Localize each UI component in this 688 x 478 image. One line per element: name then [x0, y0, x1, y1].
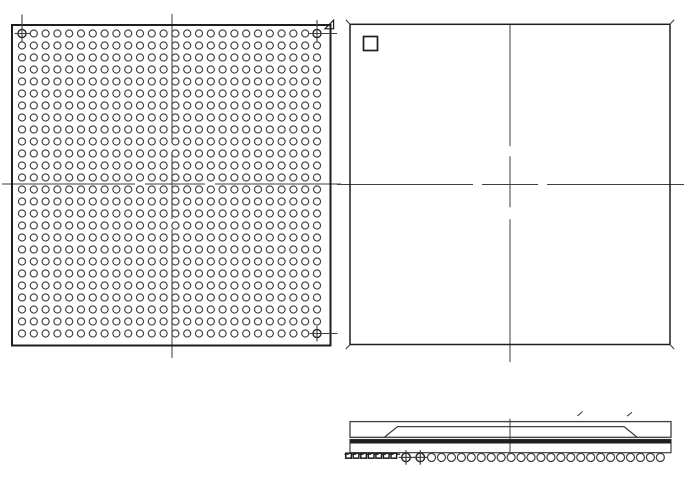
- leader-tick: [627, 412, 632, 416]
- corner-chamfer-tick: [346, 20, 351, 25]
- side-view-solder-ball: [656, 453, 664, 461]
- side-view-solder-ball: [427, 453, 435, 461]
- bga-top-view: [337, 20, 684, 362]
- sectioned-ball-mark: [376, 453, 382, 458]
- side-view-solder-ball: [467, 453, 475, 461]
- side-view-solder-ball: [587, 453, 595, 461]
- side-view-solder-ball: [646, 453, 654, 461]
- bga-bottom-view: [2, 14, 341, 358]
- sectioned-ball-mark: [368, 453, 374, 458]
- side-view-solder-ball: [507, 453, 515, 461]
- side-view-solder-ball: [437, 453, 445, 461]
- side-view-solder-ball: [477, 453, 485, 461]
- side-view-solder-ball: [577, 453, 585, 461]
- side-view-solder-ball: [547, 453, 555, 461]
- side-view-solder-ball: [597, 453, 605, 461]
- side-view-solder-ball: [487, 453, 495, 461]
- side-view-solder-ball: [447, 453, 455, 461]
- bga-side-view: [345, 412, 672, 465]
- sectioned-ball-mark: [346, 453, 352, 458]
- corner-chamfer-tick: [346, 344, 351, 349]
- sectioned-ball-mark: [391, 453, 397, 458]
- side-view-solder-ball: [537, 453, 545, 461]
- side-view-solder-ball: [527, 453, 535, 461]
- side-view-solder-ball: [636, 453, 644, 461]
- side-view-solder-ball: [517, 453, 525, 461]
- bga-package-drawing: [0, 0, 688, 478]
- corner-chamfer-tick: [670, 20, 675, 25]
- sectioned-ball-mark: [353, 453, 359, 458]
- sectioned-ball-mark: [383, 453, 389, 458]
- mechanical-drawing-page: [0, 0, 688, 478]
- sectioned-ball-mark: [361, 453, 367, 458]
- seating-plane-bar: [350, 440, 671, 444]
- side-view-solder-ball: [567, 453, 575, 461]
- side-view-solder-ball: [457, 453, 465, 461]
- side-view-solder-ball: [497, 453, 505, 461]
- pin1-square-marker: [364, 37, 378, 51]
- side-view-solder-ball: [557, 453, 565, 461]
- leader-tick: [578, 412, 583, 417]
- side-view-lid-profile: [385, 427, 638, 438]
- corner-chamfer-tick: [670, 344, 675, 349]
- side-view-solder-ball: [617, 453, 625, 461]
- side-view-solder-ball: [626, 453, 634, 461]
- side-view-solder-ball: [607, 453, 615, 461]
